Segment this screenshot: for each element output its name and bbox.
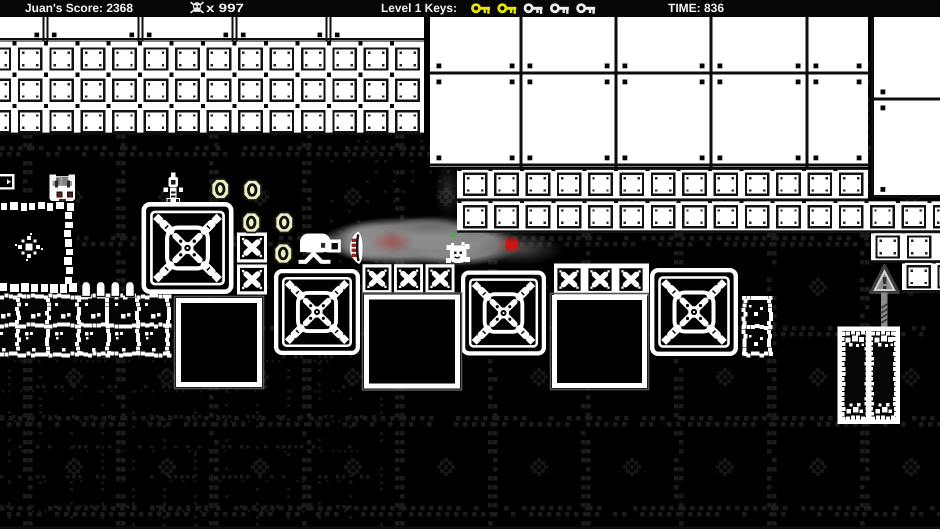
- svg-text:TIME: 836: TIME: 836: [668, 1, 724, 15]
- svg-text:Juan's Score: 2368: Juan's Score: 2368: [25, 1, 133, 15]
- svg-text:Level 1 Keys:: Level 1 Keys:: [381, 1, 457, 15]
- svg-text:x 997: x 997: [206, 1, 244, 15]
